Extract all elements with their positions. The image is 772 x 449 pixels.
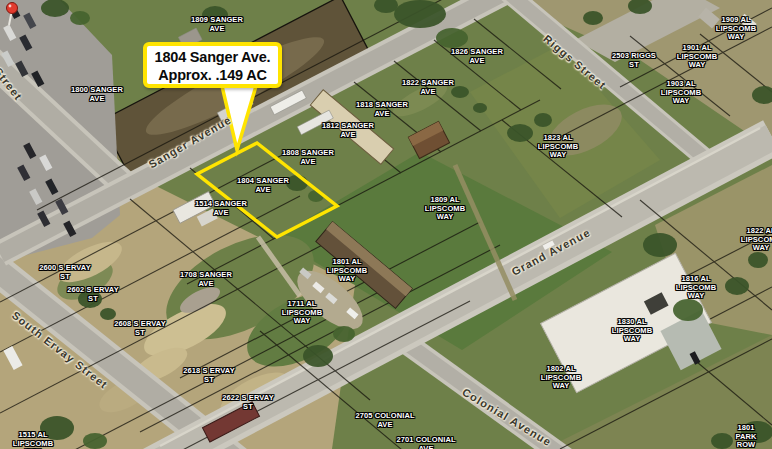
callout-pointer xyxy=(222,86,256,150)
callout-address: 1804 Sanger Ave. xyxy=(147,48,278,66)
highlight-overlay xyxy=(0,0,772,449)
map-canvas[interactable]: Harding Street Sanger Avenue Riggs Stree… xyxy=(0,0,772,449)
location-pin-icon xyxy=(0,0,24,30)
parcel-callout: 1804 Sanger Ave. Approx. .149 AC xyxy=(143,42,282,88)
callout-acreage: Approx. .149 AC xyxy=(147,66,278,84)
highlighted-parcel-outline xyxy=(197,143,337,237)
